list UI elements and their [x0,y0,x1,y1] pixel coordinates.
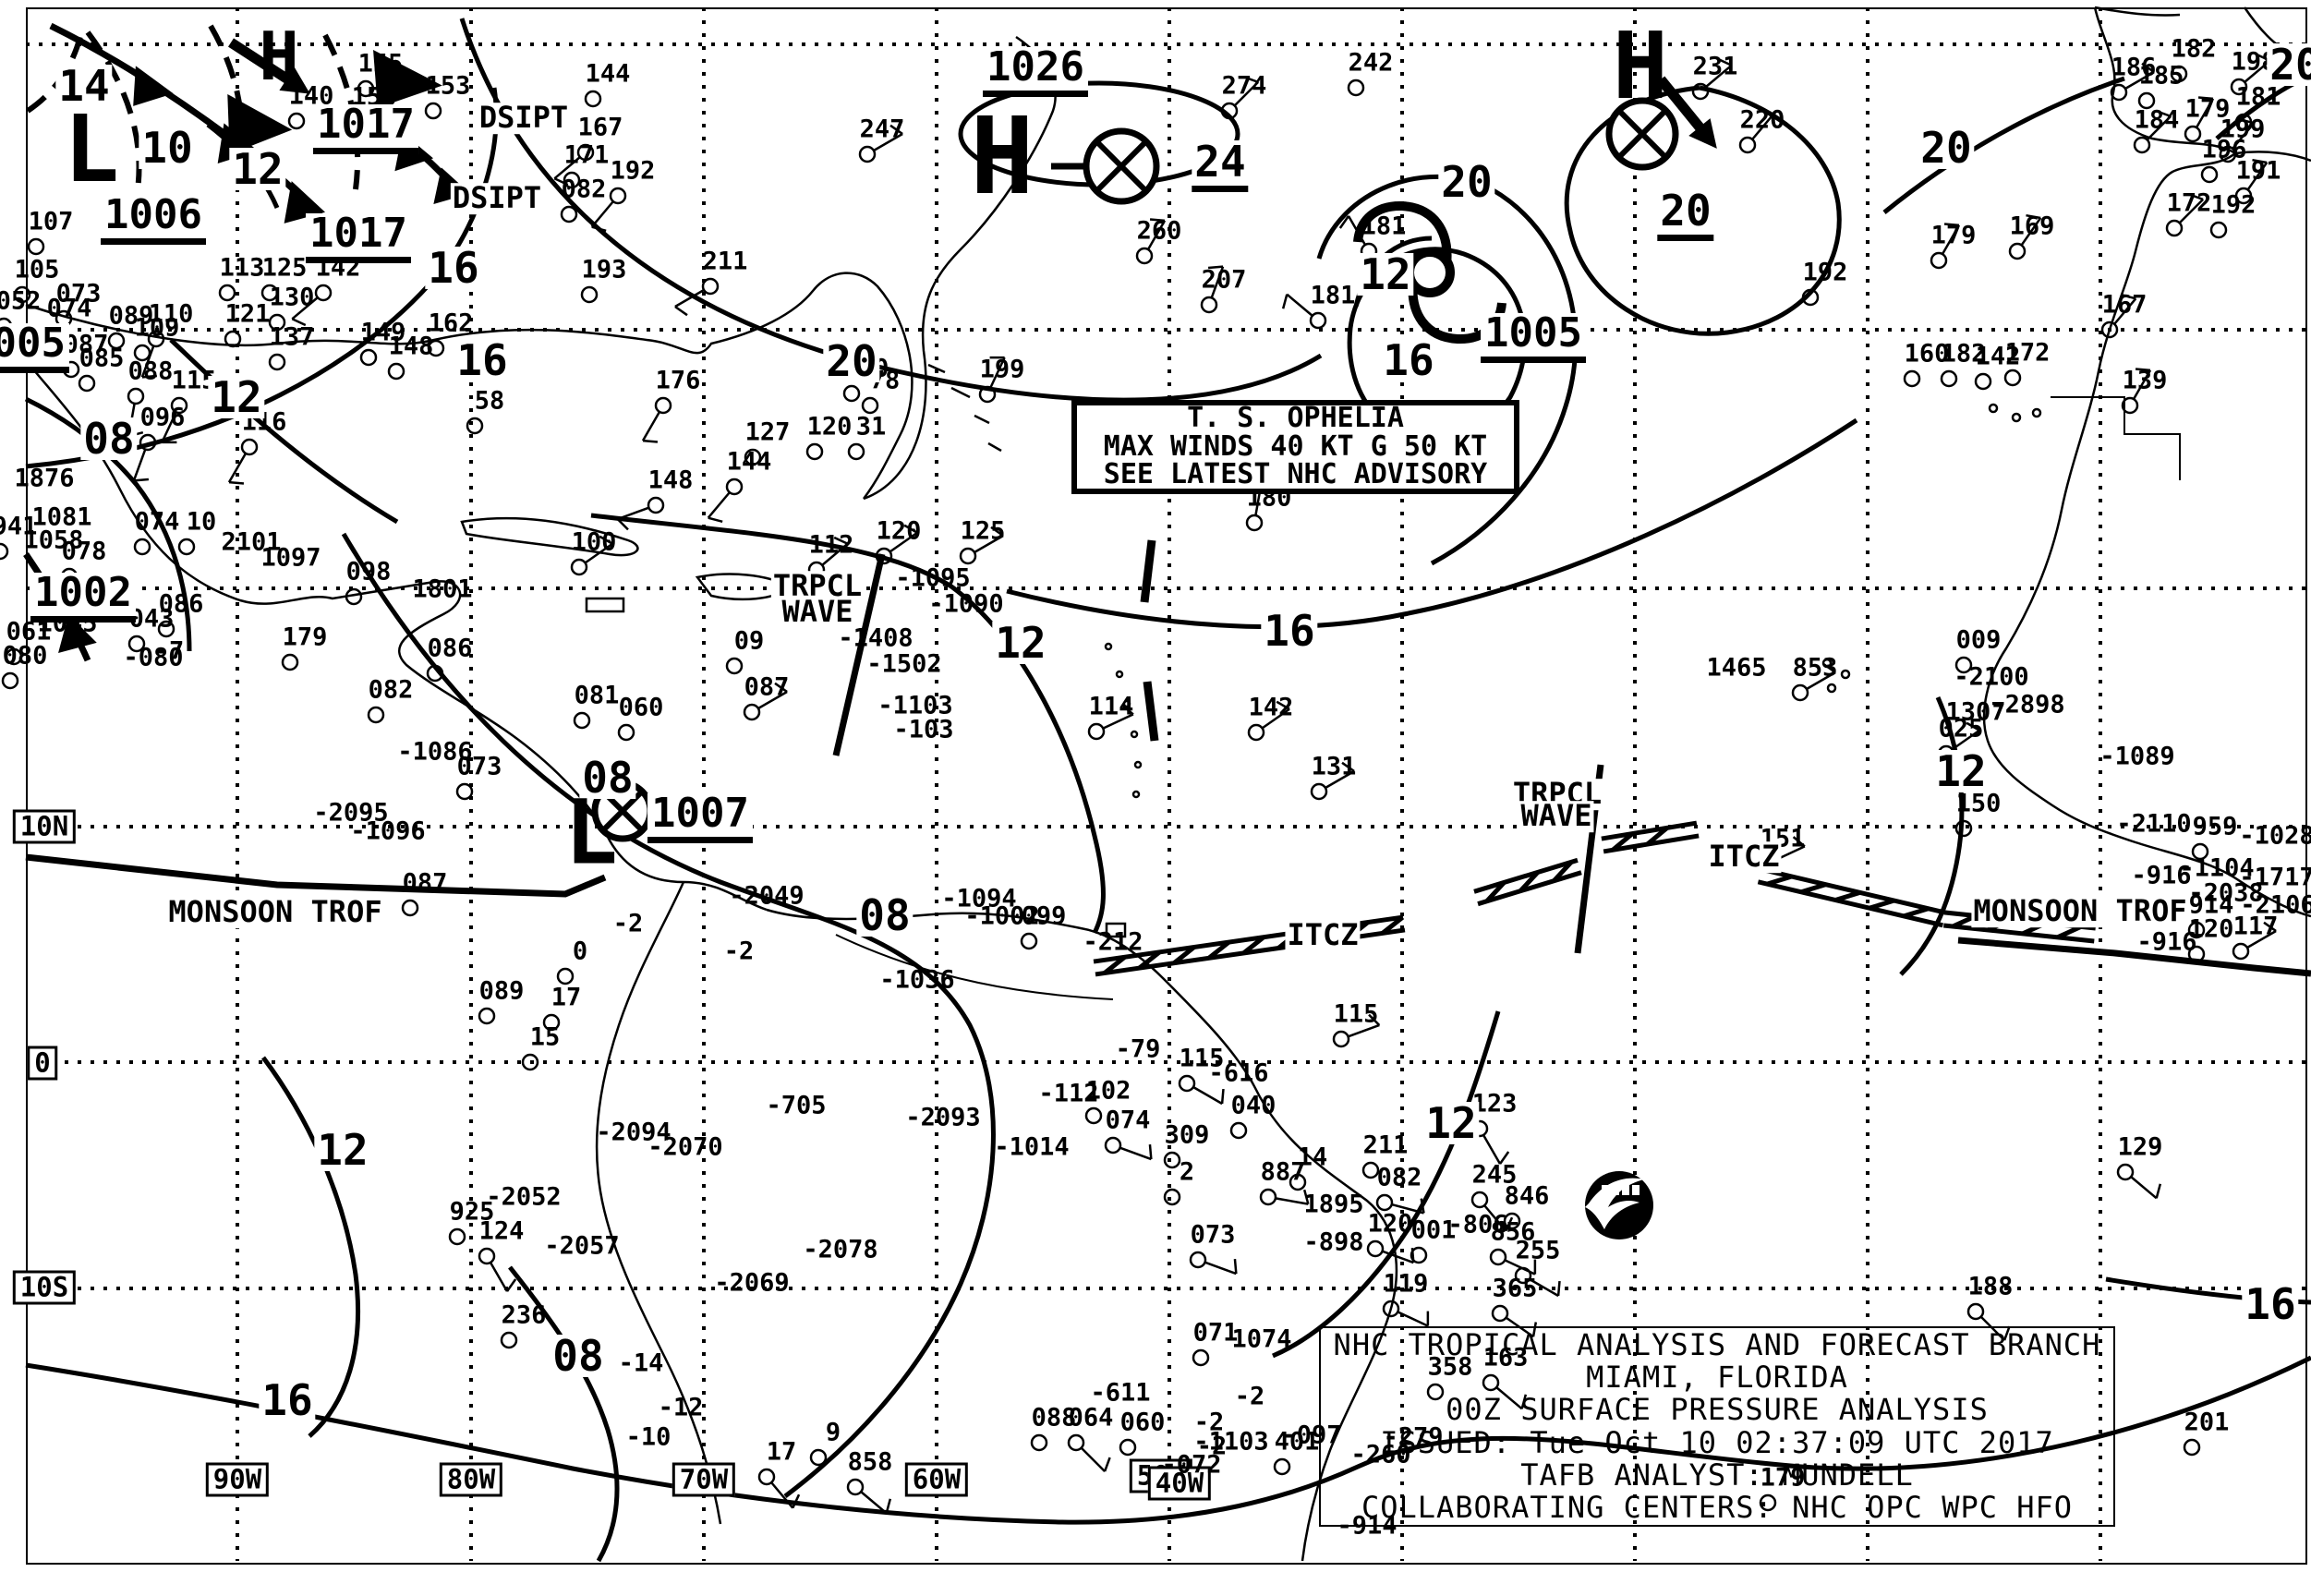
station-value: 080 [3,644,48,669]
isobar-label: 16 [454,339,510,381]
station-value: 887 [1261,1160,1306,1185]
pressure-center-label: 1026 [983,47,1088,97]
station-value: 074 [47,296,92,321]
station-value: 073 [457,755,502,780]
isobar-label: 12 [1357,253,1413,296]
station-value: 100 [572,530,617,555]
station-value: -1095 [895,566,970,591]
station-value: 144 [727,450,772,475]
station-value: 107 [29,210,74,235]
station-value: 162 [429,311,474,336]
station-value: 148 [648,468,694,493]
station-value: 040 [1231,1094,1276,1118]
bold-dashes [1144,540,1155,741]
station-value: 153 [426,74,471,99]
station-value: 959 [2193,815,2238,840]
station-value: 09 [734,629,765,654]
station-value: 1465 [1706,656,1766,681]
station-value: 148 [389,334,434,359]
pressure-center-label: 1007 [647,793,753,843]
station-value: 085 [79,346,125,371]
storm-advisory-note: SEE LATEST NHC ADVISORY [1104,461,1487,490]
station-value: -1502 [866,652,941,677]
station-value: -2 [724,939,755,964]
station-value: 211 [703,249,748,274]
station-value: -1096 [350,819,425,844]
isobar-label: 12 [229,148,285,190]
feature-label-itcz: ITCZ [1706,841,1781,873]
station-value: -2110 [2116,812,2191,837]
station-value: 130 [270,285,315,310]
isobar-label: 12 [1422,1102,1479,1144]
station-value: -916 [2136,930,2196,955]
station-value: 853 [1793,656,1838,681]
station-value: 082 [562,177,607,202]
station-value: -2052 [486,1185,561,1210]
station-value: 247 [860,117,905,142]
station-value: 1097 [260,546,321,571]
storm-name: T. S. OPHELIA [1187,405,1404,433]
station-value: 182 [2172,37,2217,62]
station-value: 199 [980,357,1025,382]
isobar-label: 12 [1932,750,1989,792]
station-value: 236 [502,1303,547,1328]
station-value: 17 [767,1440,797,1465]
station-value: -14 [619,1351,664,1376]
station-value: -212 [1083,930,1143,955]
issuing-office: NHC TROPICAL ANALYSIS AND FORECAST BRANC… [1334,1329,2101,1361]
station-value: 137 [270,325,315,350]
station-value: 102 [1086,1079,1131,1104]
station-value: -705 [766,1094,826,1118]
low-center-symbol: L [564,798,618,869]
isobar-label: 12 [314,1129,370,1171]
pressure-center-label: 1017 [313,104,418,154]
station-value: 2 [1180,1160,1194,1185]
isobar-label: 20 [1438,161,1494,203]
feature-label-dsipt: DSIPT [451,183,543,214]
station-value: 10 [187,510,217,535]
lat-label-0: 0 [27,1046,57,1081]
station-value: 193 [582,258,627,283]
storm-winds: MAX WINDS 40 KT G 50 KT [1104,433,1487,462]
station-value: 171 [564,143,610,168]
isobar-label: 12 [992,622,1048,664]
station-value: 117 [2233,914,2279,939]
station-value: -072 [1161,1453,1221,1478]
station-value: 082 [369,678,414,703]
high-center-symbol: H [259,30,298,84]
station-value: 060 [619,695,664,720]
low-center-symbol: L [64,113,119,187]
station-value: 131 [1312,755,1357,780]
station-value: -2078 [803,1238,877,1263]
station-value: 120 [807,415,853,440]
station-value: 0 [573,939,587,964]
station-value: 242 [1349,51,1394,76]
lon-label-80W: 80W [440,1463,502,1497]
station-value: -080 [123,646,183,671]
feature-label-itcz: ITCZ [1285,920,1360,951]
station-value: 120 [877,519,922,544]
station-value: 1801 [412,577,472,602]
feature-label-wave: WAVE [1518,801,1593,832]
station-value: 113 [220,256,265,281]
station-value: 1876 [14,466,74,491]
station-value: 15 [530,1025,561,1050]
station-value: 082 [1377,1166,1422,1191]
station-value: 9 [826,1421,841,1445]
station-value: 365 [1493,1276,1538,1301]
isobar-label: 24 [1192,140,1248,192]
issue-time: ISSUED: Tue Oct 10 02:37:09 UTC 2017 [1380,1427,2054,1459]
station-value: 17 [551,985,582,1010]
station-value: 081 [575,683,620,708]
high-center-symbol: H [1613,30,1668,103]
station-value: -2 [613,912,644,937]
station-value: 064 [1069,1406,1114,1431]
feature-label-wave: WAVE [780,597,854,628]
station-value: 096 [140,405,186,430]
station-value: 220 [1740,108,1785,133]
station-value: 176 [656,369,701,393]
station-value: -1014 [994,1135,1069,1160]
station-value: 124 [479,1219,525,1244]
station-value: 087 [744,675,790,700]
station-value: 121 [225,302,271,327]
isobar-label: 12 [208,376,264,418]
feature-label-dsipt: DSIPT [478,103,570,134]
isobar-label: 16 [1261,610,1317,652]
noaa-logo [1585,1171,1653,1239]
high-center-symbol: H [970,115,1034,199]
station-value: -1103 [877,694,952,719]
isobar-label: 16 [1380,339,1436,381]
station-value: -2049 [729,884,804,909]
station-value: -12 [659,1396,704,1421]
station-value: 112 [809,533,854,558]
station-value: 231 [1693,54,1738,79]
chart-title-block: NHC TROPICAL ANALYSIS AND FORECAST BRANC… [1319,1326,2115,1527]
station-value: 858 [848,1450,893,1475]
isobar-label: 20 [823,340,879,382]
lon-label-90W: 90W [206,1463,269,1497]
station-value: 125 [262,256,308,281]
station-value: -616 [1208,1061,1268,1086]
station-value: 120 [1368,1212,1413,1237]
station-value: 172 [2167,191,2212,216]
isobar-label: 08 [80,417,137,460]
station-value: -1028 [2239,824,2311,849]
feature-label-monsoon-trof: MONSOON TROF [166,897,383,928]
lon-label-70W: 70W [672,1463,735,1497]
station-value: 191 [2236,159,2281,184]
station-value: 052 [0,289,41,314]
isobar-label: 20 [1918,127,1974,169]
station-value: 188 [1968,1275,2014,1300]
station-value: -898 [1303,1230,1363,1255]
lon-label-60W: 60W [905,1463,968,1497]
collaborating-centers: COLLABORATING CENTERS: NHC OPC WPC HFO [1361,1492,2073,1524]
station-value: -1090 [928,592,1003,617]
station-value: -1036 [879,968,954,993]
isobar-label: 10 [139,127,195,169]
station-value: 260 [1137,219,1182,244]
station-value: 255 [1516,1239,1561,1263]
isobar-label: 08 [550,1335,606,1377]
station-value: 119 [1384,1272,1429,1297]
station-value: 179 [283,625,328,650]
station-value: 025 [1939,717,1984,742]
station-value: 061 [6,620,52,645]
station-value: 201 [2184,1410,2230,1435]
station-value: -2070 [647,1135,722,1160]
station-value: -2 [1235,1384,1265,1409]
station-value: -79 [1116,1037,1161,1062]
station-value: -2100 [1954,665,2028,690]
station-value: 184 [2135,108,2180,133]
office-location: MIAMI, FLORIDA [1586,1361,1848,1394]
lat-label-10S: 10S [13,1271,76,1305]
pressure-center-label: 1005 [0,323,69,373]
station-value: -1089 [2099,744,2174,769]
station-value: 167 [2102,293,2148,318]
station-value: 099 [1022,904,1067,929]
station-value: 142 [1976,345,2021,369]
isobar-label: 20 [1657,189,1713,241]
station-value: 179 [1931,224,1977,248]
station-value: 58 [475,389,505,414]
station-value: 060 [1120,1410,1166,1435]
surface-analysis-chart: 10N010S90W80W70W60W50W40W153155140158144… [0,0,2311,1596]
station-value: 086 [428,636,473,661]
station-value: -2057 [544,1234,619,1259]
station-value: 1895 [1303,1192,1363,1217]
station-value: 167 [578,115,623,140]
station-value: 009 [1956,628,2002,653]
isobar-label: 08 [856,894,913,937]
station-value: 125 [961,519,1006,544]
lat-label-10N: 10N [13,810,76,844]
station-value: 115 [1334,1002,1379,1027]
station-value: -2093 [905,1106,980,1130]
station-value: 098 [346,560,392,585]
station-value: 109 [135,316,180,341]
station-value: 1074 [1231,1327,1291,1352]
station-value: 846 [1505,1184,1550,1209]
station-value: 127 [745,420,791,445]
station-value: 087 [403,871,448,896]
station-value: 144 [586,62,631,87]
station-value: 309 [1165,1123,1210,1148]
isobar-label: 16 [259,1379,315,1421]
feature-label-monsoon-trof: MONSOON TROF [1971,896,2188,927]
station-value: 192 [2211,193,2257,218]
storm-advisory-box: T. S. OPHELIA MAX WINDS 40 KT G 50 KT SE… [1071,400,1519,494]
station-value: 129 [2118,1135,2163,1160]
station-value: 105 [15,258,60,283]
station-value: 073 [1191,1223,1236,1248]
station-value: 074 [135,510,180,535]
station-value: 139 [2123,369,2168,393]
station-value: 089 [479,979,525,1004]
product-name: 00Z SURFACE PRESSURE ANALYSIS [1446,1394,1989,1426]
station-value: 192 [1803,260,1848,285]
isobar-label: 16 [2242,1283,2298,1325]
station-value: 914 [2189,893,2234,918]
station-value: -103 [893,718,953,743]
station-value: 169 [2010,214,2055,239]
station-value: 207 [1202,268,1247,293]
station-value: 155 [358,52,404,77]
station-value: 401 [1275,1430,1320,1455]
station-value: 078 [62,539,107,564]
pressure-center-label: 1005 [1481,313,1586,363]
isobar-label: 20 [2267,43,2311,86]
analyst: TAFB ANALYST: MUNDELL [1520,1459,1914,1492]
station-value: 211 [1363,1133,1409,1158]
station-value: 192 [611,159,656,184]
station-value: 142 [1249,695,1294,720]
station-value: 274 [1222,74,1267,99]
station-value: 088 [128,359,174,384]
station-value: 181 [1311,284,1356,308]
station-value: 31 [856,415,887,440]
station-value: -2069 [714,1271,789,1296]
isobar-label: 16 [425,247,481,289]
pressure-center-label: 1002 [30,573,136,623]
station-value: 181 [1361,214,1407,239]
pressure-center-label: 1017 [306,213,411,263]
station-value: 114 [1089,695,1134,719]
station-value: -10 [626,1425,672,1450]
station-value: -1408 [838,626,913,651]
station-value: -611 [1090,1381,1150,1406]
station-value: 074 [1106,1108,1151,1133]
station-value: 186 [2111,55,2157,80]
